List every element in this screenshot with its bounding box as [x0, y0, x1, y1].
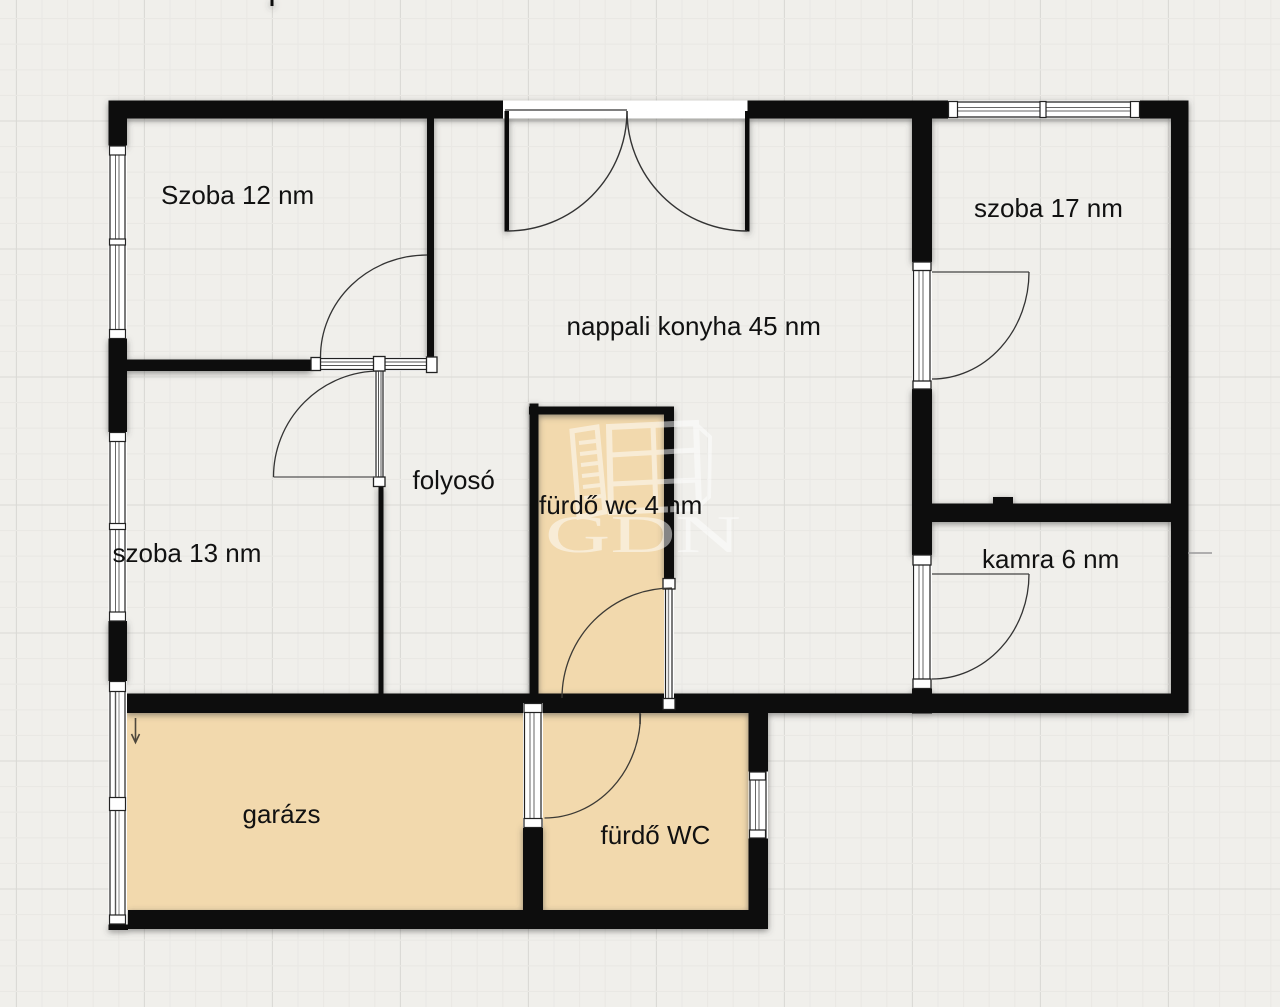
svg-text:fürdő WC: fürdő WC [601, 820, 711, 850]
svg-text:folyosó: folyosó [413, 465, 495, 495]
svg-text:nappali konyha 45 nm: nappali konyha 45 nm [567, 311, 821, 341]
svg-text:szoba 13 nm: szoba 13 nm [113, 538, 262, 568]
svg-text:Szoba 12 nm: Szoba 12 nm [161, 180, 314, 210]
svg-text:garázs: garázs [243, 799, 321, 829]
svg-text:kamra 6 nm: kamra 6 nm [982, 544, 1119, 574]
svg-text:szoba 17 nm: szoba 17 nm [974, 193, 1123, 223]
svg-text:fürdő wc 4 nm: fürdő wc 4 nm [539, 490, 702, 520]
